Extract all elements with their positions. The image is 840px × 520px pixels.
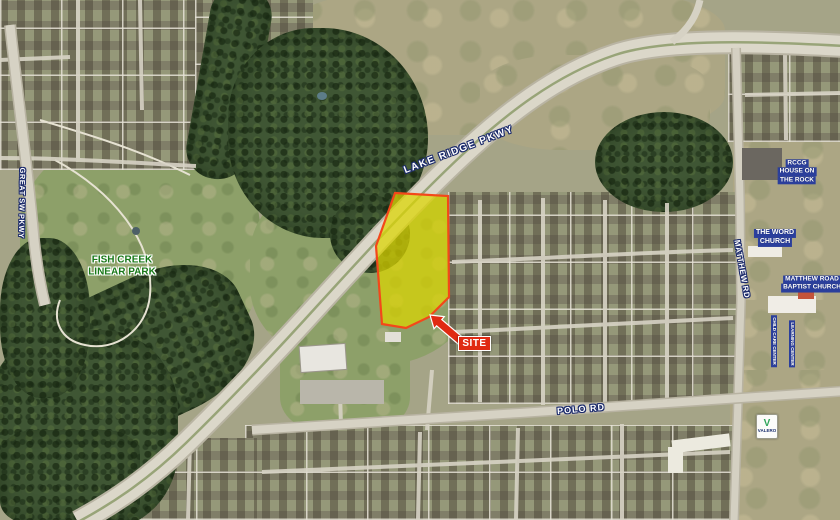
rccg-church-label-line2: HOUSE ON <box>778 168 817 176</box>
school-parking-lot <box>300 380 384 404</box>
word-church-building <box>748 246 782 257</box>
house-near-site <box>385 332 401 342</box>
lake-ridge-pkwy-road <box>78 42 840 520</box>
word-church-label-line1: THE WORD <box>754 229 796 238</box>
childcare-label-left-text: CHILD CARE CENTER <box>771 315 777 367</box>
small-pond <box>132 227 140 235</box>
childcare-label-right-text: LEARNING CENTER <box>789 320 795 367</box>
word-church-label-line2: CHURCH <box>758 238 792 247</box>
great-sw-pkwy-label: GREAT SW PKWY <box>17 167 27 238</box>
park-trail-2 <box>40 120 190 175</box>
fish-creek-park-label-line2: LINEAR PARK <box>88 266 156 278</box>
aerial-site-map: GREAT SW PKWY FISH CREEK LINEAR PARK LAK… <box>0 0 840 520</box>
rccg-building <box>742 148 782 180</box>
childcare-label-left: CHILD CARE CENTER <box>768 315 786 367</box>
rccg-church-label-line3: THE ROCK <box>778 176 816 184</box>
valero-sign: V VALERO <box>756 414 778 439</box>
rccg-church-label: RCCG HOUSE ON THE ROCK <box>778 159 817 184</box>
fish-creek-park-label-line1: FISH CREEK <box>88 255 156 267</box>
baptist-church-label: MATTHEW ROAD BAPTIST CHURCH <box>781 276 840 293</box>
fish-creek-park-label: FISH CREEK LINEAR PARK <box>88 255 156 278</box>
strip-mall-building-b <box>668 447 683 473</box>
great-sw-pkwy-road <box>10 25 45 305</box>
word-church-label: THE WORD CHURCH <box>754 229 796 247</box>
childcare-label-right: LEARNING CENTER <box>786 320 804 367</box>
pond <box>317 92 327 100</box>
site-callout-label: SITE <box>458 336 491 351</box>
valero-sign-text: VALERO <box>758 429 776 434</box>
baptist-church-label-line2: BAPTIST CHURCH <box>781 284 840 292</box>
site-parcel-polygon <box>376 193 449 328</box>
park-trail <box>55 160 150 346</box>
school-building <box>299 343 347 372</box>
